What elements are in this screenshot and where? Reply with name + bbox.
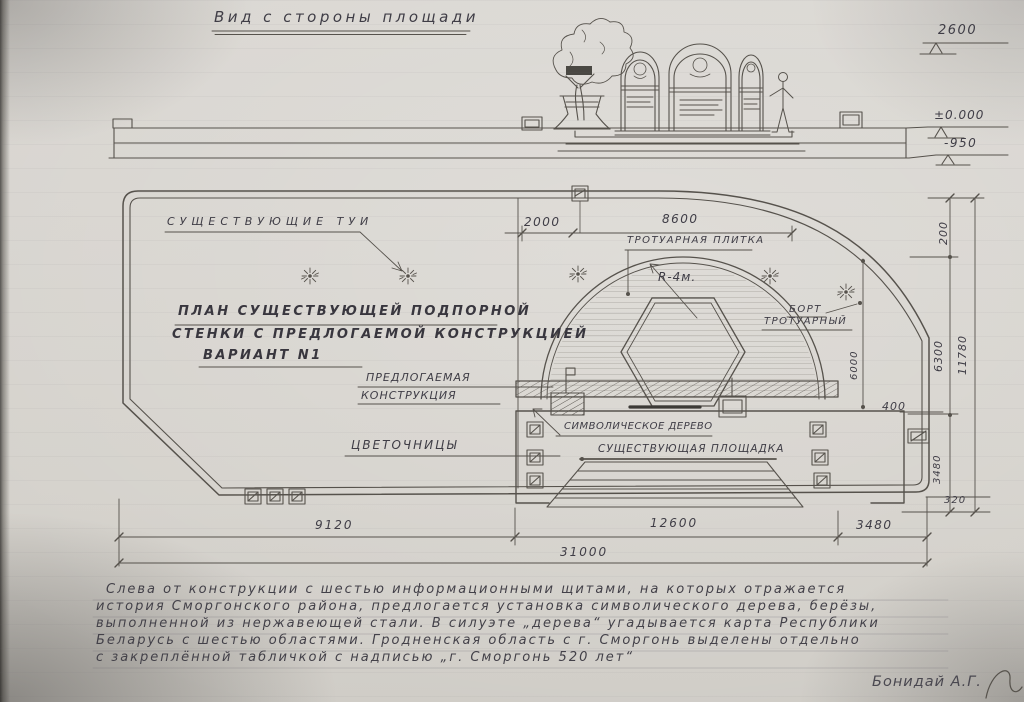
elevation-left-post xyxy=(113,119,132,128)
dim-8600: 8600 xyxy=(662,213,699,226)
dim-31000: 31000 xyxy=(560,546,608,559)
label-sidewalk-tile: ТРОТУАРНАЯ ПЛИТКА xyxy=(627,236,765,247)
elevation-steps xyxy=(550,131,812,158)
label-existing-thujas: СУЩЕСТВУЮЩИЕ ТУИ xyxy=(167,216,373,228)
label-curb-line1: БОРТ xyxy=(789,305,822,316)
note-line: выполненной из нержавеющей стали. В силу… xyxy=(96,616,956,633)
note-line: история Сморгонского района, предлогаетс… xyxy=(96,599,956,616)
dim-400: 400 xyxy=(882,401,906,413)
label-radius: R-4м. xyxy=(658,271,696,284)
dim-level-zero: ±0.000 xyxy=(934,109,984,122)
dim-9120: 9120 xyxy=(315,519,354,532)
note-line: Беларусь с шестью областями. Гродненская… xyxy=(96,633,956,650)
dim-2000: 2000 xyxy=(524,216,561,229)
label-existing-platform: СУЩЕСТВУЮЩАЯ ПЛОЩАДКА xyxy=(598,444,784,455)
dim-3480-bottom: 3480 xyxy=(856,519,893,532)
author-signature: Бонидай А.Г. xyxy=(872,674,982,690)
elevation-view xyxy=(109,18,1008,165)
retaining-wall-outer xyxy=(123,191,929,495)
dim-level-950: -950 xyxy=(944,137,977,150)
label-plan-title-line2: СТЕНКИ С ПРЕДЛОГАЕМОЙ КОНСТРУКЦИЕЙ xyxy=(172,328,588,342)
label-plan-title-line1: ПЛАН СУЩЕСТВУЮЩЕЙ ПОДПОРНОЙ xyxy=(178,305,531,319)
view-title: Вид с стороны площади xyxy=(214,8,479,26)
dim-320: 320 xyxy=(944,496,966,507)
label-proposed-line2: КОНСТРУКЦИЯ xyxy=(361,390,457,402)
blueprint-scan: Вид с стороны площади СУЩЕСТВУЮЩИЕ ТУИПЛ… xyxy=(0,0,1024,702)
note-line: с закреплённой табличкой с надписью „г. … xyxy=(96,650,956,667)
platform-steps-plan xyxy=(547,462,803,507)
plan-view xyxy=(123,186,929,507)
label-flower-boxes: ЦВЕТОЧНИЦЫ xyxy=(351,439,458,452)
dim-200: 200 xyxy=(938,221,950,245)
label-proposed-line1: ПРЕДЛОГАЕМАЯ xyxy=(366,372,471,384)
label-symbolic-tree: СИМВОЛИЧЕСКОЕ ДЕРЕВО xyxy=(564,422,713,433)
dim-6000: 6000 xyxy=(850,351,861,380)
notes-paragraph: Слева от конструкции с шестью информацио… xyxy=(96,582,956,667)
dim-6300: 6300 xyxy=(933,340,945,372)
note-line: Слева от конструкции с шестью информацио… xyxy=(96,582,956,599)
human-figure-elevation xyxy=(770,73,794,133)
signature-flourish xyxy=(986,671,1022,698)
dim-2600: 2600 xyxy=(938,24,977,38)
dim-11780: 11780 xyxy=(957,335,969,375)
label-plan-title-line3: ВАРИАНТ N1 xyxy=(203,349,323,363)
info-panels-elevation xyxy=(621,44,763,131)
thuja-symbols xyxy=(302,266,855,300)
flower-boxes-plan xyxy=(245,422,830,504)
dim-12600: 12600 xyxy=(650,517,698,530)
dim-3480-right: 3480 xyxy=(933,455,944,484)
label-curb-line2: ТРОТУАРНЫЙ xyxy=(764,317,847,328)
